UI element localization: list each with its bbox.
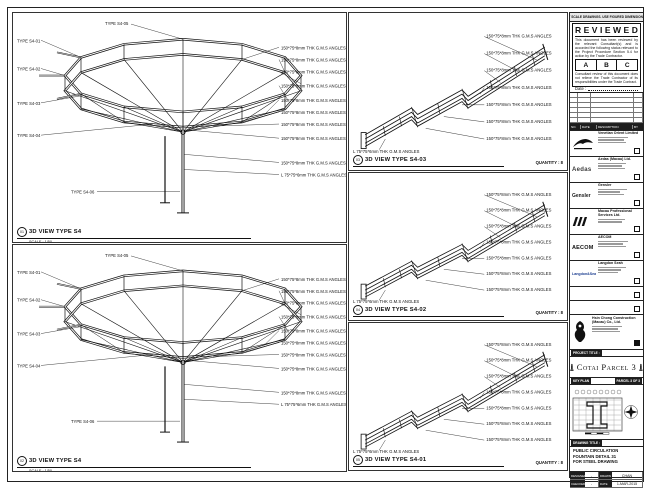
view-quantity-text: QUANTITY : 8 <box>536 310 563 315</box>
consultant-name: Gensler <box>598 184 641 188</box>
drawing-title-line-3: FOR STEEL DRAWING <box>573 459 640 465</box>
venetian-orient-logo-icon <box>572 138 594 150</box>
member-label: 150*75*8mm THK G.M.S ANGLES <box>281 160 346 165</box>
detail-bubble: 04 <box>353 305 363 315</box>
sheet-general-note: DO NOT SCALE DRAWINGS. USE FIGURED DIMEN… <box>570 13 643 22</box>
member-label: 150*75*8mm THK G.M.S ANGLES <box>486 136 551 141</box>
consultant-name: Venetian Orient Limited <box>598 132 641 136</box>
angle-label: L 75*75*6mm THK G.M.S ANGLES <box>353 299 419 304</box>
type-label: TYPE S4-01 <box>17 270 41 275</box>
aecom-logo: AECOM <box>572 245 593 251</box>
consultant-name: Aedas (Macau) Ltd. <box>598 158 641 162</box>
viewport-3d-view-type-s4-a: TYPE S4-01 TYPE S4-02 TYPE S4-03 TYPE S4… <box>12 12 347 243</box>
member-label: 150*75*8mm THK G.M.S ANGLES <box>281 277 346 282</box>
mps-logo-icon <box>572 216 590 227</box>
key-plan-drawing <box>571 386 640 435</box>
revision-table-header: NO. DATE DESCRIPTION BY <box>570 124 643 131</box>
aedas-logo: Aedas <box>572 167 592 173</box>
type-label: TYPE S4-03 <box>17 332 41 337</box>
member-label: 150*75*8mm THK G.M.S ANGLES <box>486 102 551 107</box>
consultant-row-mps: Macau Professional Services Ltd. <box>570 209 643 235</box>
consultant-row-aedas: Aedas Aedas (Macau) Ltd. <box>570 157 643 183</box>
review-stamp: REVIEWED This document has been reviewed… <box>570 22 643 93</box>
detail-bubble: 02 <box>17 456 27 466</box>
drawing-title-label: DRAWING TITLE : <box>571 440 602 446</box>
drawn-label: DRAWN <box>599 472 612 480</box>
consultant-row-empty-1 <box>570 287 643 301</box>
project-title-label: PROJECT TITLE : <box>571 350 602 356</box>
type-label: TYPE S4-05 <box>105 253 129 258</box>
member-label: 150*75*8mm THK G.M.S ANGLES <box>281 341 346 346</box>
langdon-seah-logo: Langdon&Seah <box>572 272 596 276</box>
date-value: 1-MAR-2015 <box>612 480 643 488</box>
member-label: 150*75*8mm THK G.M.S ANGLES <box>486 68 551 73</box>
angle-label: L 75*75*6mm THK G.M.S ANGLES <box>353 449 419 454</box>
consultant-row-aecom: AECOM AECOM <box>570 235 643 261</box>
zigzag-drawing-03: 150*75*8mm THK G.M.S ANGLES 150*75*8mm T… <box>349 13 567 155</box>
viewport-3d-view-type-s4-02: 150*75*8mm THK G.M.S ANGLES 150*75*8mm T… <box>348 172 568 321</box>
ornament-column-icon <box>639 360 643 375</box>
gensler-logo: Gensler <box>572 193 591 199</box>
member-label: 150*75*8mm THK G.M.S ANGLES <box>486 33 551 38</box>
key-plan-bar: KEY PLAN PARCEL 3 OF 3 <box>570 378 643 385</box>
member-label: 150*75*8mm THK G.M.S ANGLES <box>486 85 551 90</box>
member-label: 150*75*8mm THK G.M.S ANGLES <box>281 45 346 50</box>
member-label: 150*75*8mm THK G.M.S ANGLES <box>281 136 346 141</box>
member-label: 150*75*8mm THK G.M.S ANGLES <box>281 315 346 320</box>
viewport-3d-view-type-s4-b: TYPE S4-01 TYPE S4-02 TYPE S4-03 TYPE S4… <box>12 244 347 472</box>
status-checkbox <box>634 252 640 258</box>
consultant-row-empty-2 <box>570 301 643 315</box>
cone-drawing-a: TYPE S4-01 TYPE S4-02 TYPE S4-03 TYPE S4… <box>13 13 346 225</box>
consultant-row-venetian: Venetian Orient Limited <box>570 131 643 157</box>
type-label: TYPE S4-06 <box>71 419 95 424</box>
zigzag-drawing-01: 150*75*8mm THK G.M.S ANGLES 150*75*8mm T… <box>349 323 567 455</box>
ornament-column-icon <box>570 360 574 375</box>
drawing-title-box: PUBLIC CIRCULATION FOUNTAIN DETAIL 31 FO… <box>570 447 643 472</box>
viewport-3d-view-type-s4-01: 150*75*8mm THK G.M.S ANGLES 150*75*8mm T… <box>348 322 568 471</box>
project-title-text: Cotai Parcel 3 <box>577 362 636 372</box>
member-label: 150*75*8mm THK G.M.S ANGLES <box>486 287 551 292</box>
consultant-row-gensler: Gensler Gensler <box>570 183 643 209</box>
member-label: 150*75*8mm THK G.M.S ANGLES <box>486 271 551 276</box>
view-title-a: 01 3D VIEW TYPE S4 SCALE : 1/50 <box>17 227 342 240</box>
consultant-name: Langdon Seah <box>598 262 641 266</box>
fields-table: DESIGNED - DRAWN CHAN CHECKED - DATE 1-M… <box>570 472 643 488</box>
drawing-title-bar: DRAWING TITLE : <box>570 440 643 447</box>
member-label: 150*75*8mm THK G.M.S ANGLES <box>486 437 551 442</box>
status-checkbox <box>634 292 640 298</box>
member-label: 150*75*8mm THK G.M.S ANGLES <box>486 342 551 347</box>
member-label: 150*75*8mm THK G.M.S ANGLES <box>281 301 346 306</box>
rev-col-date: DATE <box>581 125 597 129</box>
view-title-text: 3D VIEW TYPE S4-02 <box>365 307 426 313</box>
status-checkbox <box>634 174 640 180</box>
type-label: TYPE S4-02 <box>17 298 41 303</box>
cone-drawing-b: TYPE S4-01 TYPE S4-02 TYPE S4-03 TYPE S4… <box>13 245 346 454</box>
member-label: 150*75*8mm THK G.M.S ANGLES <box>281 70 346 75</box>
title-block: DO NOT SCALE DRAWINGS. USE FIGURED DIMEN… <box>569 12 644 478</box>
contractor-box: Hsin Chong Construction (Macau) Co., Ltd… <box>570 315 643 350</box>
member-label: 150*75*8mm THK G.M.S ANGLES <box>486 421 551 426</box>
key-plan-box <box>570 385 643 440</box>
date-label: DATE <box>599 480 612 488</box>
project-title-box: Cotai Parcel 3 <box>570 357 643 378</box>
angle-label: L 75*75*6mm THK G.M.S ANGLES <box>353 149 419 154</box>
member-label: 150*75*8mm THK G.M.S ANGLES <box>486 255 551 260</box>
grade-c-cell: C <box>617 60 637 70</box>
member-label: L 75*75*6mm THK G.M.S ANGLES <box>281 402 346 407</box>
member-label: 150*75*8mm THK G.M.S ANGLES <box>281 289 346 294</box>
member-label: 150*75*8mm THK G.M.S ANGLES <box>486 358 551 363</box>
stamp-body-text: This document has been reviewed by the r… <box>575 38 638 58</box>
stamp-date-line <box>588 86 638 91</box>
status-checkbox <box>634 306 640 312</box>
compass-icon <box>625 406 638 419</box>
member-label: 150*75*8mm THK G.M.S ANGLES <box>486 374 551 379</box>
stamp-grade-row: A B C <box>575 59 638 71</box>
member-label: 150*75*8mm THK G.M.S ANGLES <box>486 192 551 197</box>
designed-value: - <box>585 472 599 480</box>
member-label: 150*75*8mm THK G.M.S ANGLES <box>486 389 551 394</box>
drawing-sheet: TYPE S4-01 TYPE S4-02 TYPE S4-03 TYPE S4… <box>0 0 650 488</box>
member-label: 150*75*8mm THK G.M.S ANGLES <box>281 329 346 334</box>
member-label: 150*75*8mm THK G.M.S ANGLES <box>281 390 346 395</box>
detail-bubble: 03 <box>353 155 363 165</box>
type-label: TYPE S4-03 <box>17 101 41 106</box>
project-title-bar: PROJECT TITLE : <box>570 350 643 357</box>
key-plan-parcel-label: PARCEL 3 OF 3 <box>615 378 642 384</box>
member-label: 150*75*8mm THK G.M.S ANGLES <box>281 122 346 127</box>
grade-a-cell: A <box>576 60 597 70</box>
member-label: 150*75*8mm THK G.M.S ANGLES <box>486 208 551 213</box>
designed-label: DESIGNED <box>570 472 585 480</box>
member-label: 150*75*8mm THK G.M.S ANGLES <box>281 366 346 371</box>
type-label: TYPE S4-06 <box>71 190 95 195</box>
view-title-text: 3D VIEW TYPE S4-03 <box>365 157 426 163</box>
member-label: 150*75*8mm THK G.M.S ANGLES <box>486 405 551 410</box>
view-title-02: 04 3D VIEW TYPE S4-02 QUANTITY : 8 <box>353 305 563 318</box>
member-label: 150*75*8mm THK G.M.S ANGLES <box>281 110 346 115</box>
status-checkbox <box>634 200 640 206</box>
view-title-text: 3D VIEW TYPE S4 <box>29 229 81 235</box>
type-label: TYPE S4-04 <box>17 363 41 368</box>
grade-b-cell: B <box>597 60 618 70</box>
contractor-name: Hsin Chong Construction (Macau) Co., Ltd… <box>592 317 641 325</box>
member-label: 150*75*8mm THK G.M.S ANGLES <box>281 98 346 103</box>
member-label: 150*75*8mm THK G.M.S ANGLES <box>486 239 551 244</box>
type-label: TYPE S4-04 <box>17 133 41 138</box>
status-checkbox <box>634 148 640 154</box>
checked-value: - <box>585 480 599 488</box>
contractor-logo-icon <box>572 320 588 344</box>
zigzag-drawing-02: 150*75*8mm THK G.M.S ANGLES 150*75*8mm T… <box>349 173 567 305</box>
view-title-b: 02 3D VIEW TYPE S4 SCALE : 1/50 <box>17 456 342 469</box>
member-label: 150*75*8mm THK G.M.S ANGLES <box>281 84 346 89</box>
status-checkbox <box>634 278 640 284</box>
view-title-text: 3D VIEW TYPE S4-01 <box>365 457 426 463</box>
key-plan-label: KEY PLAN <box>571 378 591 384</box>
view-scale-text: SCALE : 1/50 <box>29 469 342 472</box>
rev-col-by: BY <box>633 125 643 129</box>
revision-table <box>570 93 643 124</box>
view-title-text: 3D VIEW TYPE S4 <box>29 458 81 464</box>
type-label: TYPE S4-05 <box>105 21 129 26</box>
view-title-03: 03 3D VIEW TYPE S4-03 QUANTITY : 8 <box>353 155 563 168</box>
detail-bubble: 01 <box>17 227 27 237</box>
rev-col-no: NO. <box>570 125 581 129</box>
stamp-title: REVIEWED <box>575 25 638 37</box>
status-checkbox-filled <box>634 340 640 346</box>
consultant-name: AECOM <box>598 236 641 240</box>
member-label: 150*75*8mm THK G.M.S ANGLES <box>486 51 551 56</box>
member-label: 150*75*8mm THK G.M.S ANGLES <box>281 57 346 62</box>
stamp-note-text: Consultant review of this document does … <box>575 72 638 84</box>
member-label: 150*75*8mm THK G.M.S ANGLES <box>486 119 551 124</box>
member-label: L 75*75*6mm THK G.M.S ANGLES <box>281 173 346 178</box>
view-quantity-text: QUANTITY : 8 <box>536 160 563 165</box>
type-label: TYPE S4-01 <box>17 38 41 43</box>
view-scale-text: SCALE : 1/50 <box>29 240 342 243</box>
drawn-value: CHAN <box>612 472 643 480</box>
view-quantity-text: QUANTITY : 8 <box>536 460 563 465</box>
checked-label: CHECKED <box>570 480 585 488</box>
consultant-name: Macau Professional Services Ltd. <box>598 210 641 218</box>
status-checkbox <box>634 226 640 232</box>
view-title-01: 05 3D VIEW TYPE S4-01 QUANTITY : 8 <box>353 455 563 468</box>
rev-col-desc: DESCRIPTION <box>597 125 633 129</box>
stamp-date-label: Date : <box>575 86 586 91</box>
type-label: TYPE S4-02 <box>17 67 41 72</box>
detail-bubble: 05 <box>353 455 363 465</box>
consultant-row-langdon-seah: Langdon&Seah Langdon Seah <box>570 261 643 287</box>
viewport-3d-view-type-s4-03: 150*75*8mm THK G.M.S ANGLES 150*75*8mm T… <box>348 12 568 171</box>
member-label: 150*75*8mm THK G.M.S ANGLES <box>281 352 346 357</box>
scale-bar-icon <box>585 433 609 435</box>
member-label: 150*75*8mm THK G.M.S ANGLES <box>486 224 551 229</box>
